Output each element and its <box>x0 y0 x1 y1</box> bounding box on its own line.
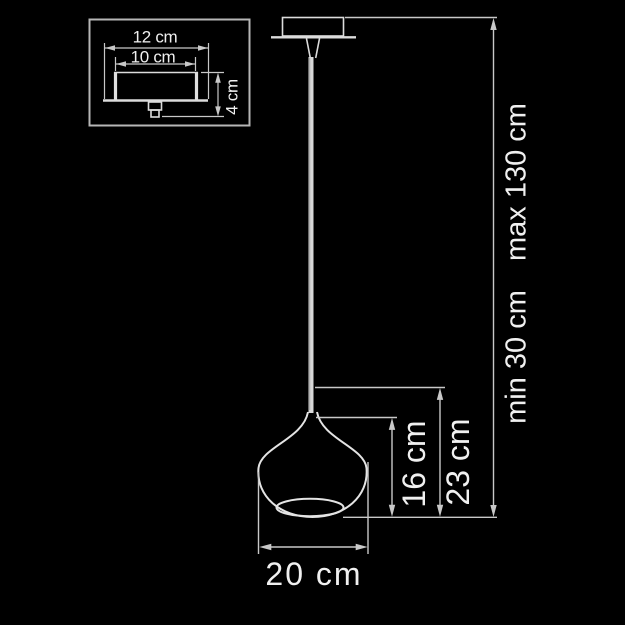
shade-overall-height-label: 23 cm <box>442 418 474 505</box>
cord-body <box>309 57 314 413</box>
inset-plate-width-label: 12 cm <box>133 29 178 46</box>
suspension-min-label: min 30 cm <box>503 290 532 424</box>
arrow-right-icon <box>198 45 208 50</box>
arrow-left-icon <box>116 61 126 66</box>
pendant-cord <box>309 57 314 413</box>
arrow-up-icon <box>389 418 395 430</box>
arrow-down-icon <box>490 505 496 517</box>
arrow-down-icon <box>215 106 221 116</box>
inset-cord-grip-upper <box>149 102 162 110</box>
cord-funnel-left <box>307 39 311 59</box>
canopy-box <box>283 18 344 37</box>
arrow-left-icon <box>105 45 115 50</box>
shade-outline <box>258 412 366 517</box>
arrow-down-icon <box>437 505 443 517</box>
cord-funnel-right <box>316 39 320 59</box>
inset-canopy-height-label: 4 cm <box>224 79 241 115</box>
arrow-right-icon <box>356 544 368 550</box>
shade-diameter-label: 20 cm <box>265 558 362 590</box>
arrow-up-icon <box>437 388 443 400</box>
lamp-shade <box>258 412 366 517</box>
shade-height-label: 16 cm <box>398 420 430 507</box>
arrow-right-icon <box>185 61 195 66</box>
suspension-max-label: max 130 cm <box>503 103 532 261</box>
arrow-up-icon <box>490 18 496 30</box>
arrow-up-icon <box>215 73 221 83</box>
pendant-lamp-dimension-diagram: 12 cm 10 cm 4 cm 20 cm 16 cm 23 cm max 1… <box>0 0 625 625</box>
inset-cord-grip-lower <box>151 110 159 117</box>
inset-body-width-label: 10 cm <box>131 49 176 66</box>
arrow-left-icon <box>259 544 271 550</box>
arrow-down-icon <box>389 505 395 517</box>
shade-opening-rim <box>277 499 344 516</box>
ceiling-mount <box>271 18 356 59</box>
